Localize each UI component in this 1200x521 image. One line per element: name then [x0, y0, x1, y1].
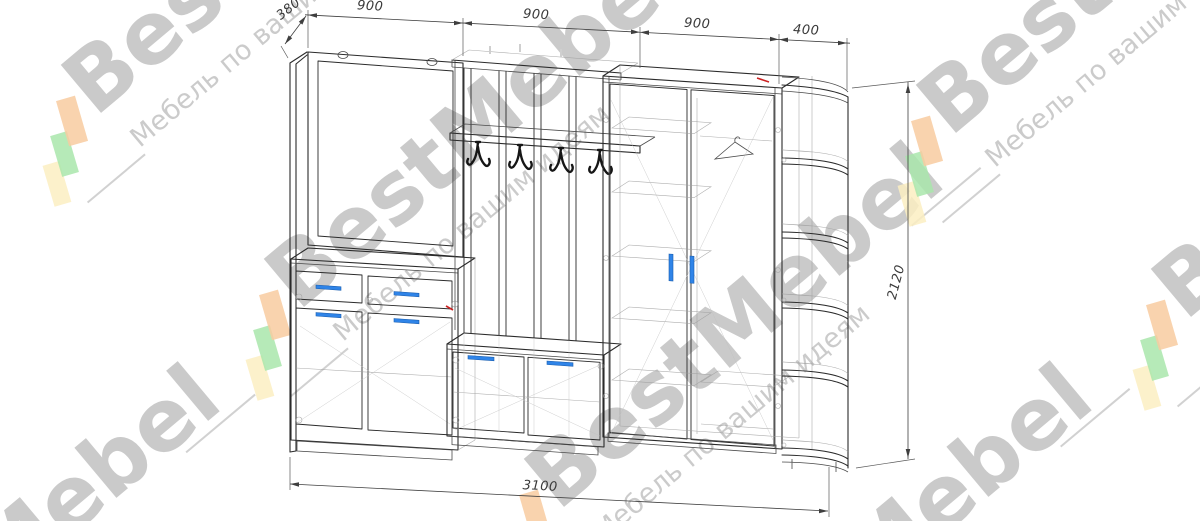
dimension-label-total: 3100	[522, 478, 558, 495]
watermark-underline	[88, 154, 145, 202]
watermark-brand-text: BestMebel	[507, 124, 962, 521]
watermark-brand-text: BestMebel	[0, 346, 239, 521]
dimension-label-corner: 400	[793, 22, 820, 38]
corner-shelf	[782, 85, 848, 97]
watermark-underline	[1178, 358, 1200, 406]
hook-icon	[589, 150, 611, 174]
watermark-underline	[291, 348, 348, 396]
mirror-mount-knob	[427, 59, 437, 66]
hanger-rod	[700, 136, 772, 141]
accent-mark	[757, 78, 769, 82]
cabinet-door	[368, 313, 452, 435]
dimension-label-section3: 900	[684, 16, 711, 32]
dimension-label-section1: 900	[357, 0, 384, 15]
dimension-label-height: 2120	[885, 263, 909, 301]
wardrobe-door-handle	[690, 256, 694, 283]
watermark-tile: BestMebel	[0, 326, 262, 521]
bench-door-handle	[468, 356, 494, 361]
corner-shelf	[782, 150, 848, 175]
furniture-technical-drawing: BestMebel Мебель по вашим идеям BestMebe…	[0, 0, 1200, 521]
wardrobe-door-handle	[669, 254, 673, 281]
door-handle	[394, 319, 419, 324]
hanger-icon	[715, 137, 753, 159]
cabinet-plinth	[297, 441, 452, 460]
watermark-brand-text: BestMebel	[247, 0, 702, 328]
dimension-label-section2: 900	[523, 7, 550, 23]
